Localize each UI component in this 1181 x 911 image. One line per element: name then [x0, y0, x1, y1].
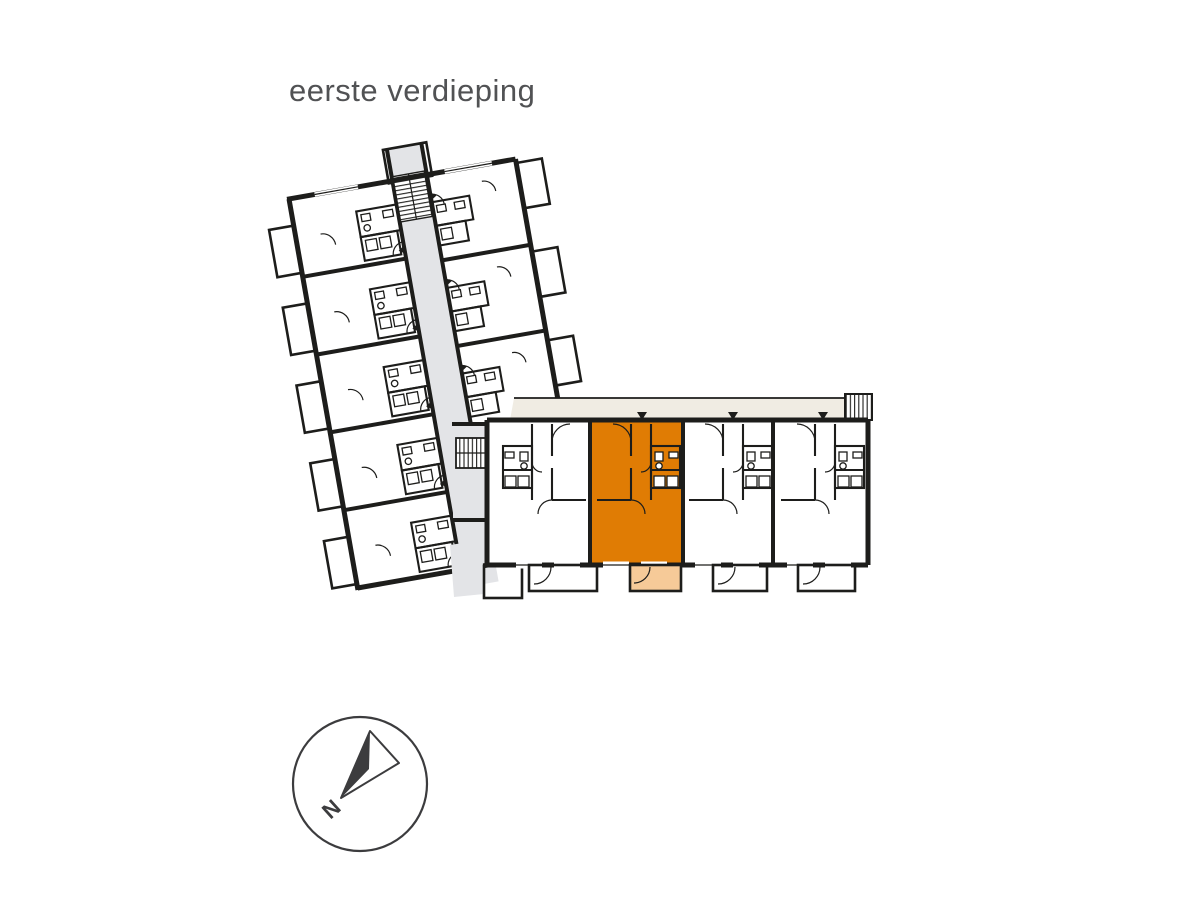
right-wing — [487, 394, 872, 591]
balcony — [529, 565, 597, 591]
gallery-walkway — [510, 398, 845, 420]
stairwell-gallery-end — [845, 394, 872, 420]
floor-plan-canvas: N — [0, 0, 1181, 911]
balcony — [713, 565, 767, 591]
compass: N — [293, 717, 427, 851]
highlighted-unit-balcony[interactable] — [630, 565, 681, 591]
balcony — [798, 565, 855, 591]
highlighted-unit[interactable] — [592, 422, 681, 563]
corridor-link — [450, 540, 484, 597]
